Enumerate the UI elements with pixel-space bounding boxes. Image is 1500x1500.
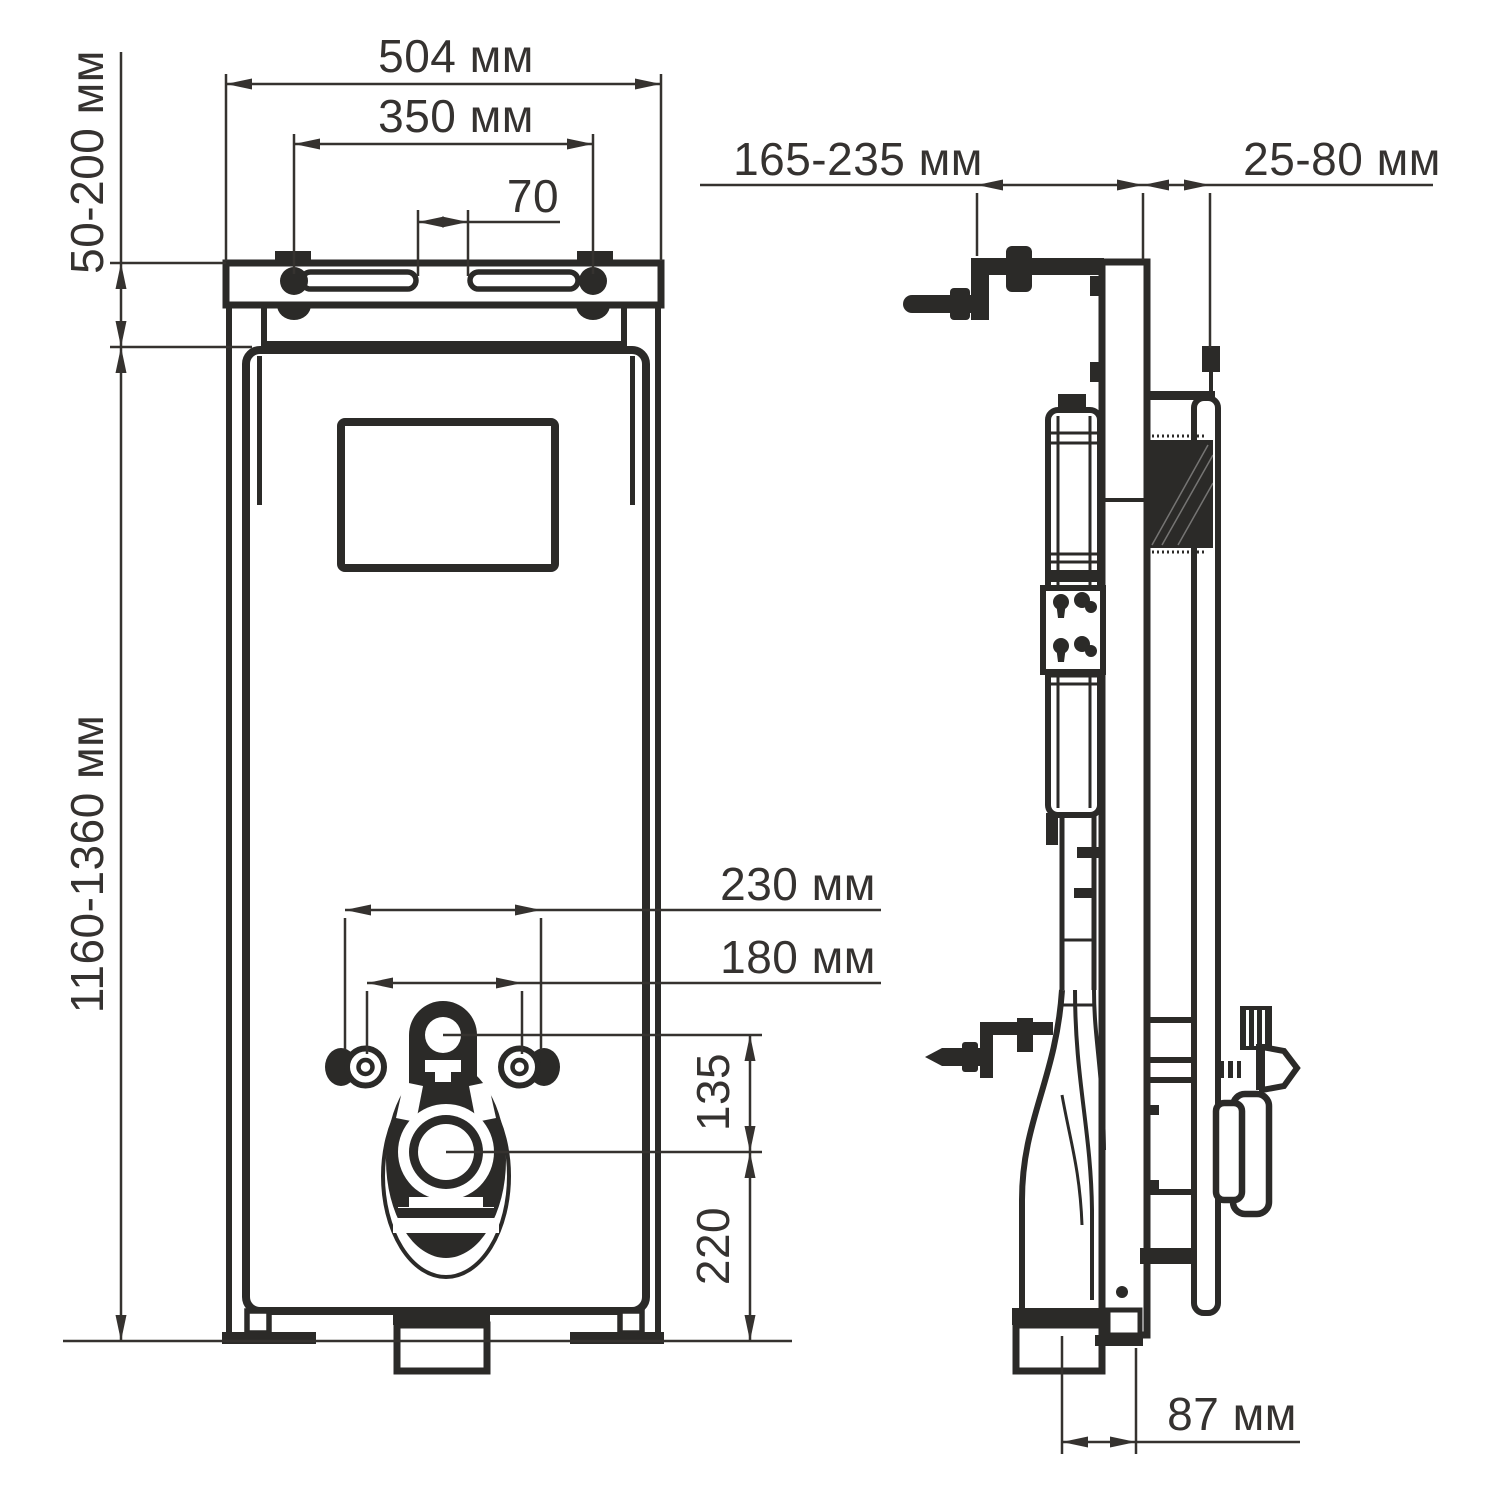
tank-band <box>1048 570 1100 582</box>
stud-core <box>359 1060 373 1074</box>
bracket-arm <box>977 258 1104 275</box>
side-foot-pad <box>1095 1335 1143 1346</box>
bend-inner-2 <box>1062 1095 1082 1225</box>
front-hanger-slot-right <box>470 272 578 289</box>
bracket-lug <box>1006 246 1032 292</box>
neck-foot-right <box>451 1072 461 1084</box>
arrow-left <box>1062 1437 1088 1448</box>
stud-core <box>513 1060 527 1074</box>
frame-lug-lower <box>1090 362 1104 382</box>
dim-wall-clearance: 25-80 мм <box>1143 133 1441 348</box>
arrow-left <box>418 217 444 228</box>
drain-key-upper <box>1147 1105 1159 1115</box>
arrow-right <box>635 79 661 90</box>
side-insulation-block <box>1147 436 1213 552</box>
dim-label-wall-clearance: 25-80 мм <box>1243 133 1441 185</box>
front-bottom-spigot <box>397 1325 487 1371</box>
dim-label-fixing-span-outer: 230 мм <box>720 858 876 910</box>
dim-label-flush-pipe-height: 135 <box>687 1053 739 1131</box>
tank-keyhole-plate <box>1043 588 1103 672</box>
arrow-down <box>745 1126 756 1152</box>
arrow-left <box>226 79 252 90</box>
dim-label-hanger-spacing: 350 мм <box>378 90 534 142</box>
anchor-screw <box>903 295 987 313</box>
anchor-screw <box>925 1048 988 1066</box>
adjust-stud <box>1202 346 1220 372</box>
side-cistern-tank <box>1043 394 1103 845</box>
dim-label-outlet-offset: 87 мм <box>1167 1388 1297 1440</box>
frame-screw-dot <box>1116 1286 1128 1298</box>
dim-label-slot-gap: 70 <box>507 170 559 222</box>
front-hanger-slot-left <box>302 272 416 289</box>
front-fixing-stud-left <box>325 1048 384 1086</box>
front-foot-bracket-left <box>247 1311 269 1333</box>
side-flush-pipe <box>1022 815 1104 1308</box>
arrow-left <box>294 139 320 150</box>
dim-label-frame-depth: 165-235 мм <box>733 133 983 185</box>
lobe-2b <box>1085 645 1097 657</box>
screw-collar <box>962 1042 978 1072</box>
arrow-up <box>745 1035 756 1061</box>
front-view <box>222 251 664 1371</box>
thread-slit-1 <box>1246 1010 1249 1046</box>
side-wall-bracket-bottom <box>925 1018 1053 1078</box>
front-foot-bracket-right <box>620 1311 642 1333</box>
arrow-left <box>1143 180 1169 191</box>
dim-outlet-height: 220 <box>687 1152 756 1341</box>
tank-foot <box>1046 813 1058 845</box>
arrow-up <box>745 1152 756 1178</box>
arrow-right <box>1184 180 1210 191</box>
arrow-right <box>1110 1437 1136 1448</box>
rib-3 <box>1237 1061 1241 1078</box>
drain-key-lower <box>1147 1180 1159 1190</box>
screw-collar <box>950 288 970 320</box>
arrow-right <box>442 217 468 228</box>
dim-label-top-clearance: 50-200 мм <box>61 50 113 274</box>
stripe-bolt-right <box>483 1193 494 1207</box>
frame-lug-upper <box>1090 276 1104 296</box>
arrow-right <box>567 139 593 150</box>
arrow-down <box>116 1315 127 1341</box>
front-bolt-boss-left <box>277 305 311 320</box>
pipe-clamp-2 <box>1074 888 1096 898</box>
side-frame-channel <box>1102 262 1147 1335</box>
dim-label-fixing-span-inner: 180 мм <box>720 931 876 983</box>
neck-foot-left <box>425 1072 435 1084</box>
dim-label-outlet-height: 220 <box>687 1207 739 1285</box>
side-bottom-spigot <box>1016 1325 1102 1371</box>
body-stripe-2 <box>393 1218 499 1233</box>
rib-2 <box>1228 1061 1233 1078</box>
drain-flange-inner <box>1216 1103 1242 1200</box>
dim-label-height-range: 1160-1360 мм <box>61 715 113 1014</box>
installation-frame-drawing: 504 мм 350 мм 70 50-200 мм <box>0 0 1500 1500</box>
arrow-right <box>1117 180 1143 191</box>
drain-lower-bar <box>1140 1248 1194 1264</box>
pipe-clamp-1 <box>1077 847 1100 858</box>
drawing-canvas: 504 мм 350 мм 70 50-200 мм <box>0 0 1500 1500</box>
stripe-bolt-left <box>398 1193 409 1207</box>
arrow-up <box>116 347 127 373</box>
thread-slit-2 <box>1254 1010 1257 1046</box>
side-view <box>903 246 1297 1371</box>
lobe-1b <box>1085 601 1097 613</box>
dim-label-front-width: 504 мм <box>378 30 534 82</box>
side-wall-bracket-top <box>903 246 1104 320</box>
front-access-window <box>341 422 555 568</box>
front-fixing-stud-right <box>501 1048 560 1086</box>
dim-height-range: 1160-1360 мм <box>61 347 127 1341</box>
body-stripe-1 <box>398 1197 494 1208</box>
bend-inner-1 <box>1075 990 1092 1300</box>
bracket-lug <box>1017 1018 1033 1052</box>
arrow-down <box>745 1315 756 1341</box>
arrow-up <box>116 263 127 289</box>
flush-cone-tip <box>1262 1047 1297 1090</box>
rib-1 <box>1218 1061 1224 1078</box>
thread-slit-3 <box>1262 1010 1265 1046</box>
arrow-down <box>116 321 127 347</box>
front-bolt-boss-right <box>576 305 610 320</box>
side-foot-bracket <box>1108 1310 1140 1335</box>
